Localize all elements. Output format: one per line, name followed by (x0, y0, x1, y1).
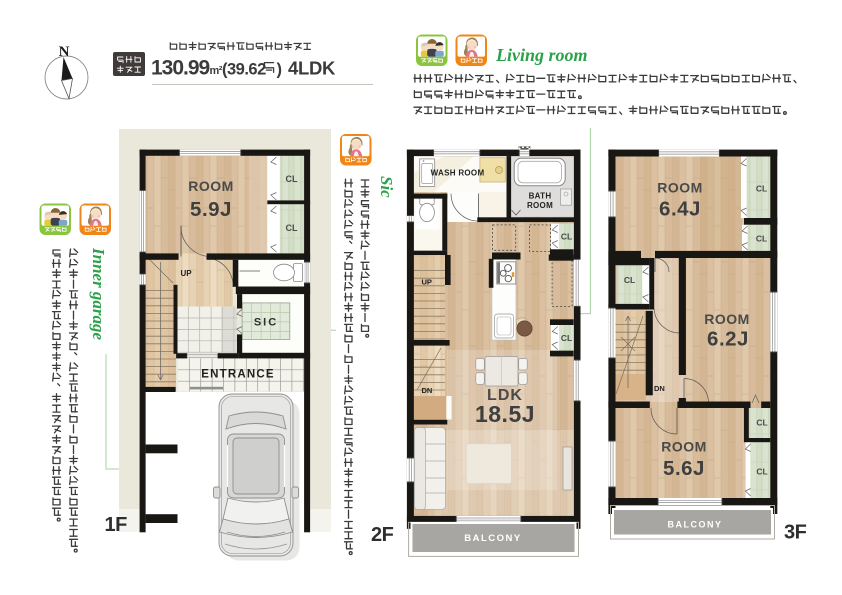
svg-text:ROOM: ROOM (527, 201, 553, 210)
svg-text:ROOM: ROOM (188, 178, 234, 194)
svg-text:BALCONY: BALCONY (668, 520, 723, 530)
svg-text:CL: CL (624, 275, 635, 285)
svg-text:4LDK: 4LDK (288, 58, 336, 79)
svg-text:CL: CL (756, 467, 767, 477)
svg-text:6.2J: 6.2J (707, 328, 749, 351)
svg-text:CL: CL (286, 223, 298, 233)
svg-text:Living room: Living room (495, 45, 588, 65)
svg-text:2F: 2F (371, 524, 394, 546)
svg-text:CL: CL (756, 234, 767, 244)
svg-text:DN: DN (422, 386, 433, 395)
svg-text:): ) (277, 61, 283, 79)
svg-text:CL: CL (561, 232, 572, 242)
svg-text:WASH ROOM: WASH ROOM (431, 169, 485, 178)
svg-text:CL: CL (756, 184, 767, 194)
svg-text:BALCONY: BALCONY (464, 533, 521, 544)
svg-text:DN: DN (654, 384, 665, 393)
svg-text:CL: CL (756, 418, 767, 428)
svg-text:5.9J: 5.9J (190, 198, 232, 221)
svg-text:N: N (59, 44, 70, 60)
svg-text:18.5J: 18.5J (475, 401, 535, 427)
svg-text:Inner garage: Inner garage (89, 247, 108, 341)
svg-text:(39.62: (39.62 (222, 61, 266, 79)
svg-text:ROOM: ROOM (657, 180, 703, 196)
svg-text:ROOM: ROOM (704, 311, 750, 327)
svg-text:CL: CL (561, 333, 572, 343)
svg-text:ENTRANCE: ENTRANCE (201, 369, 275, 381)
svg-text:BATH: BATH (529, 192, 552, 201)
svg-text:UP: UP (181, 269, 193, 278)
svg-text:ROOM: ROOM (661, 439, 707, 455)
svg-text:3F: 3F (784, 522, 807, 544)
svg-text:m²: m² (210, 65, 223, 77)
svg-text:5.6J: 5.6J (663, 457, 705, 480)
svg-text:6.4J: 6.4J (659, 198, 701, 221)
svg-text:UP: UP (422, 278, 432, 287)
svg-text:CL: CL (286, 174, 298, 184)
svg-text:SIC: SIC (254, 317, 278, 329)
svg-text:130.99: 130.99 (151, 57, 210, 80)
svg-text:Sic: Sic (377, 176, 396, 198)
svg-text:1F: 1F (105, 514, 128, 536)
